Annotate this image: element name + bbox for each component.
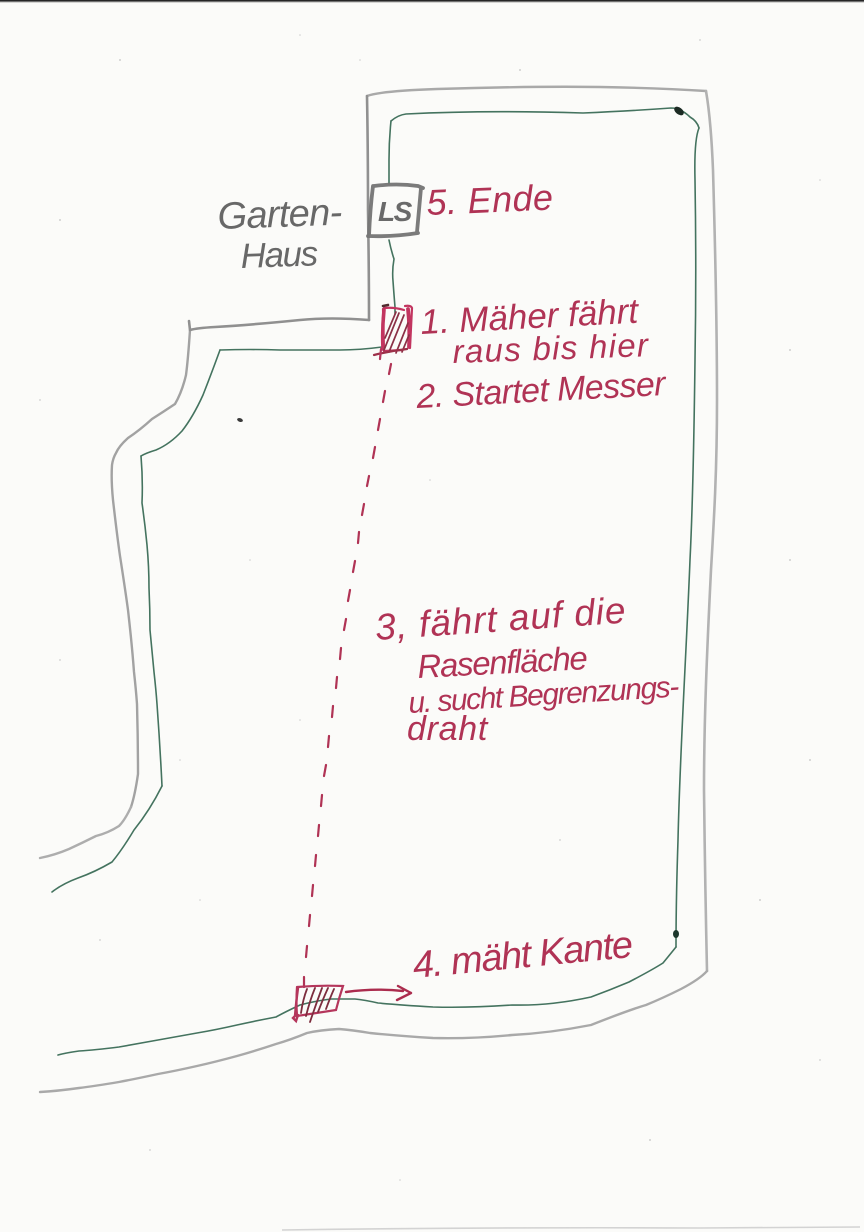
svg-text:draht: draht <box>407 710 489 748</box>
svg-text:raus bis hier: raus bis hier <box>452 326 651 370</box>
svg-text:LS: LS <box>378 196 413 227</box>
svg-text:Garten-: Garten- <box>217 192 342 238</box>
svg-text:Haus: Haus <box>240 234 318 276</box>
svg-text:5. Ende: 5. Ende <box>426 176 555 222</box>
